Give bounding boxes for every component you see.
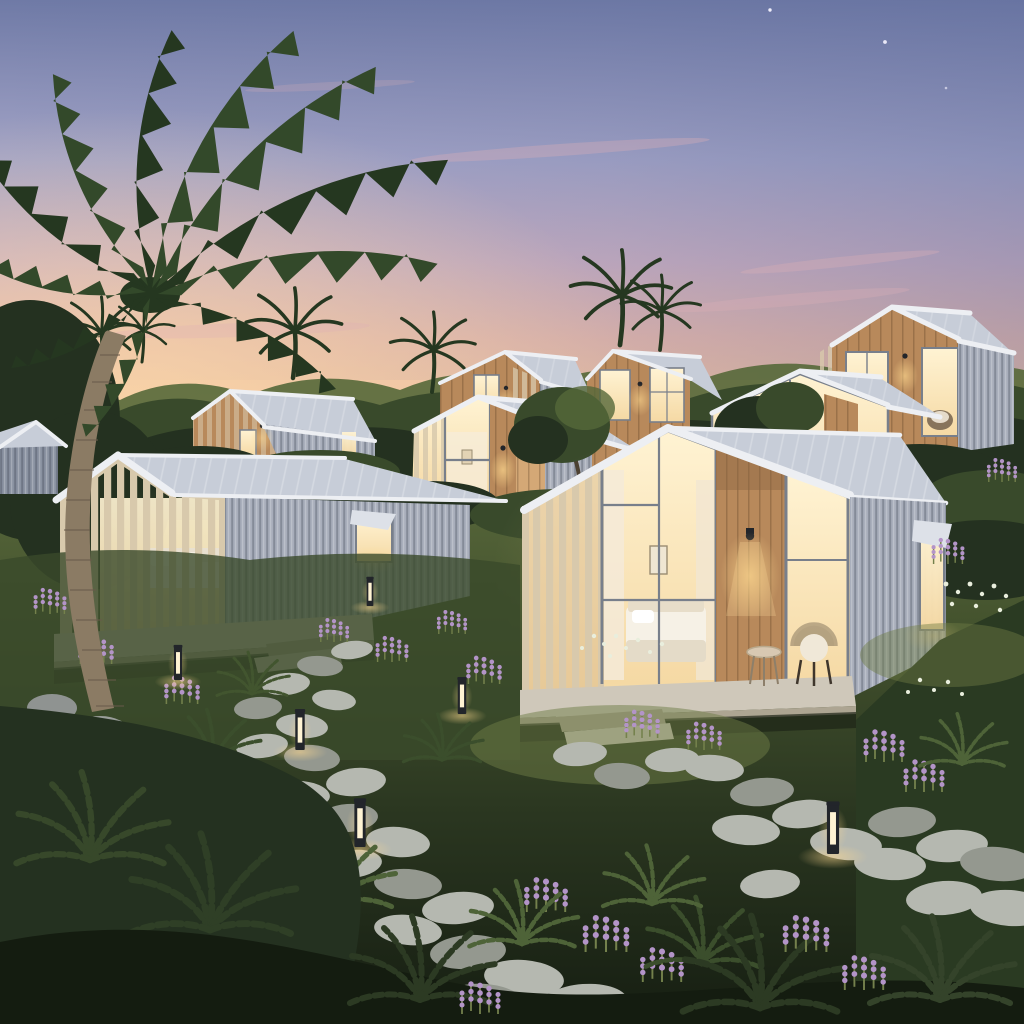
wall-sconce bbox=[500, 445, 505, 450]
sconce-glow bbox=[628, 384, 652, 416]
wall-art bbox=[462, 450, 472, 464]
sconce-glow bbox=[720, 532, 780, 620]
rendered-scene bbox=[0, 0, 1024, 1024]
sconce-glow bbox=[490, 451, 516, 489]
bed bbox=[626, 600, 706, 662]
curtain bbox=[604, 470, 624, 680]
scene-canvas bbox=[0, 0, 1024, 1024]
wall-sconce bbox=[902, 353, 907, 358]
bedroom-window bbox=[602, 430, 716, 684]
porch-post bbox=[522, 506, 529, 694]
